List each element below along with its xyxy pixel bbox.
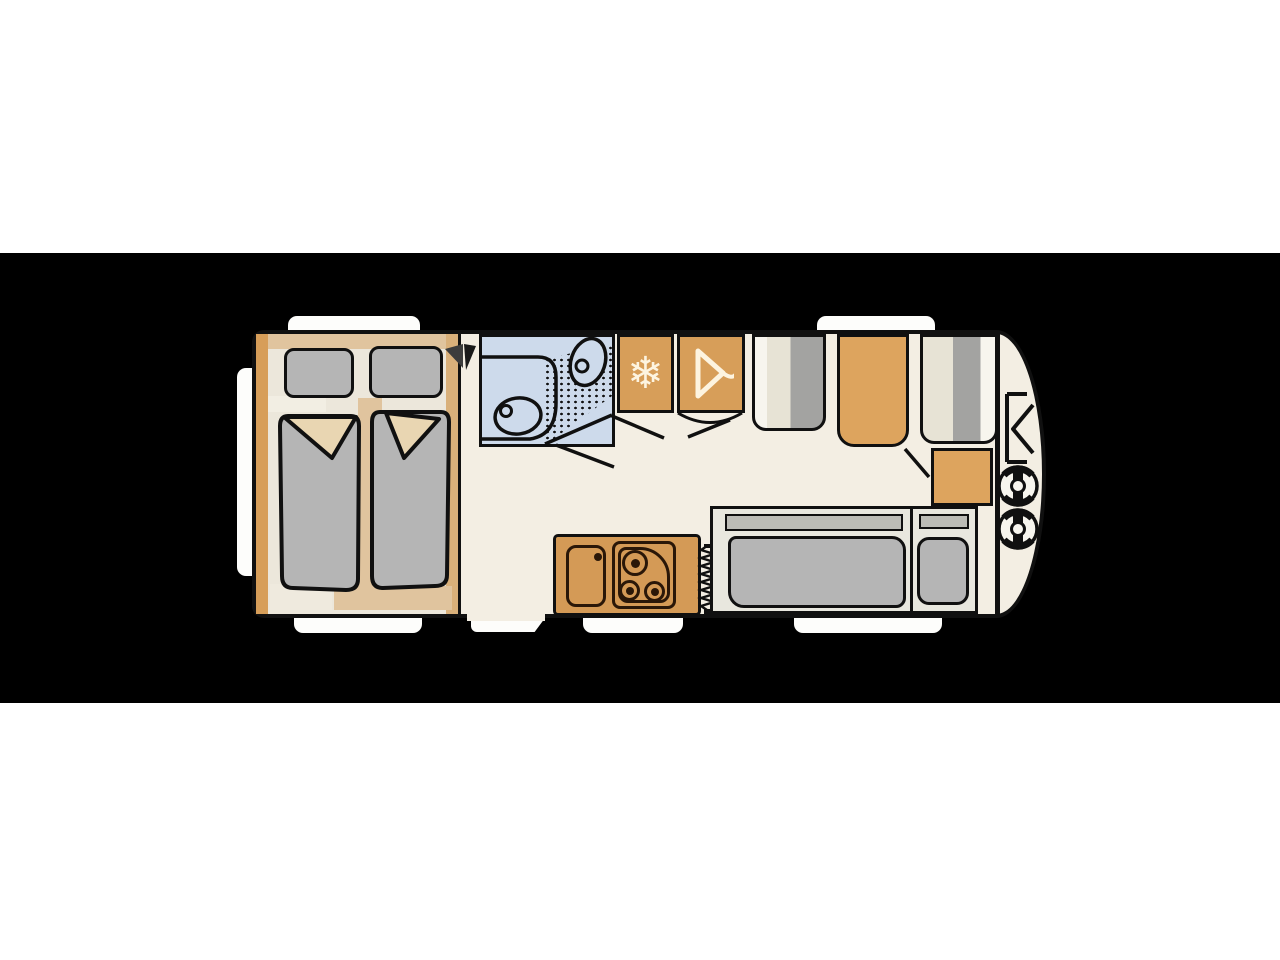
window-bottom-lounge [794,616,942,633]
wardrobe-door-swing [688,420,730,437]
bedroom-door-leaf [464,344,476,370]
wardrobe-door-arc [678,413,742,423]
sofa-bed [710,506,978,614]
window-bottom-bedroom [294,616,422,633]
bedroom-left-wall-wardrobe [256,334,268,614]
dinette-table [837,334,909,447]
sofa-pillow [917,537,969,605]
bed-right-duvet [367,406,453,594]
fridge: ❄ [617,334,674,413]
dinette-bench-right [920,334,998,444]
burner-2-dot [626,587,634,595]
bathroom-fixtures [482,337,612,444]
bathroom-door-swing [556,445,614,467]
entrance-door-opening [467,611,545,621]
wardrobe [677,334,745,413]
washbasin [493,395,544,437]
low-cabinet [931,448,993,506]
gas-bottle-1 [996,464,1040,508]
bathroom [479,334,615,447]
hitch-icon [1003,391,1039,465]
window-bottom-kitchen [583,616,683,633]
sofa-backrest-right [919,514,969,529]
burner-1-dot [631,559,640,568]
fridge-icon: ❄ [627,352,664,396]
dinette-bench-left [752,334,826,431]
sofa-cushion [728,536,906,608]
pillow-right [369,346,443,398]
pillow-left [284,348,354,398]
kitchen-faucet [594,553,602,561]
caravan-hull: ❄ [252,330,1046,618]
cabinet-door-swing [905,449,929,477]
hanger-icon [688,346,734,402]
sofa-backrest [725,514,903,531]
bedroom-partition-wall [458,334,461,614]
kitchen-block [553,534,701,616]
page: { "scene": { "description": "Top-view ca… [0,0,1280,960]
gas-bottle-2 [996,507,1040,551]
sofa-divider [910,509,913,611]
burner-3-dot [651,588,659,596]
bed-left-duvet [274,408,364,596]
fridge-door-swing [612,416,664,438]
